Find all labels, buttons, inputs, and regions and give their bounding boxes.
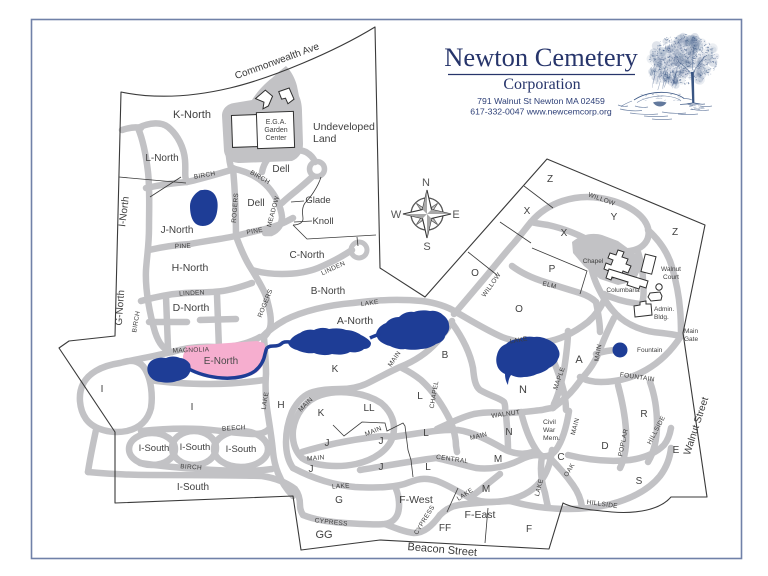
- svg-text:G: G: [335, 495, 343, 506]
- svg-text:I-South: I-South: [226, 444, 257, 455]
- svg-text:J-North: J-North: [161, 225, 194, 236]
- svg-text:D: D: [601, 441, 608, 452]
- svg-text:Garden: Garden: [264, 127, 287, 134]
- svg-text:M: M: [482, 484, 490, 495]
- svg-text:Z: Z: [672, 227, 678, 238]
- svg-text:MAIN: MAIN: [594, 344, 604, 362]
- svg-text:FF: FF: [439, 523, 451, 534]
- svg-text:Civil: Civil: [543, 419, 556, 426]
- svg-text:Bldg.: Bldg.: [654, 314, 669, 321]
- svg-text:LAKE: LAKE: [332, 482, 351, 490]
- svg-text:S: S: [423, 241, 430, 253]
- svg-text:Corporation: Corporation: [503, 76, 580, 93]
- svg-text:D-North: D-North: [173, 302, 210, 314]
- svg-text:Main: Main: [684, 328, 698, 335]
- svg-text:G-North: G-North: [114, 290, 127, 326]
- svg-text:R: R: [640, 409, 647, 420]
- svg-text:617-332-0047 www.newcemcorp.or: 617-332-0047 www.newcemcorp.org: [470, 107, 612, 117]
- svg-text:N: N: [505, 427, 512, 438]
- svg-text:I-South: I-South: [180, 442, 211, 453]
- svg-text:K-North: K-North: [173, 109, 211, 121]
- svg-text:791 Walnut St Newton MA 02459: 791 Walnut St Newton MA 02459: [477, 96, 605, 106]
- svg-text:Chapel: Chapel: [583, 258, 604, 265]
- svg-text:LAKE: LAKE: [360, 299, 379, 308]
- svg-text:Knoll: Knoll: [312, 216, 333, 227]
- svg-text:MAIN: MAIN: [570, 417, 581, 436]
- svg-text:F-East: F-East: [465, 509, 496, 521]
- svg-text:C-North: C-North: [289, 250, 324, 261]
- svg-text:E: E: [452, 209, 459, 221]
- svg-text:Land: Land: [313, 133, 337, 145]
- svg-text:K: K: [332, 364, 339, 375]
- svg-text:L: L: [425, 462, 431, 473]
- svg-text:L: L: [423, 428, 429, 439]
- svg-text:Court: Court: [663, 274, 679, 281]
- svg-text:P: P: [549, 264, 556, 275]
- svg-text:Z: Z: [547, 174, 553, 185]
- svg-text:Y: Y: [611, 212, 618, 223]
- svg-text:H-North: H-North: [172, 262, 209, 274]
- svg-text:CYPRESS: CYPRESS: [314, 517, 348, 527]
- svg-text:Walnut: Walnut: [661, 266, 681, 273]
- svg-text:MAIN: MAIN: [307, 454, 325, 462]
- svg-text:Undeveloped: Undeveloped: [313, 121, 375, 133]
- svg-text:J: J: [325, 438, 330, 449]
- svg-text:N: N: [519, 384, 527, 396]
- svg-text:C: C: [557, 452, 564, 463]
- svg-text:I: I: [191, 402, 194, 413]
- svg-text:E: E: [673, 445, 680, 456]
- svg-text:Walnut Street: Walnut Street: [682, 396, 711, 457]
- svg-text:Dell: Dell: [272, 164, 289, 175]
- svg-text:Glade: Glade: [305, 195, 330, 206]
- svg-text:O: O: [471, 268, 479, 279]
- svg-text:M: M: [494, 454, 502, 465]
- svg-text:BIRCH: BIRCH: [131, 310, 142, 333]
- svg-text:X: X: [524, 206, 531, 217]
- svg-text:H: H: [277, 400, 284, 411]
- svg-text:S: S: [636, 476, 643, 487]
- svg-text:F: F: [526, 524, 532, 535]
- svg-text:Columbaria: Columbaria: [606, 287, 640, 294]
- svg-text:O: O: [515, 304, 523, 315]
- svg-text:Mem.: Mem.: [543, 435, 560, 442]
- svg-text:Center: Center: [265, 135, 287, 142]
- svg-text:War: War: [543, 427, 556, 434]
- svg-text:Admin.: Admin.: [654, 306, 674, 313]
- svg-text:L: L: [417, 391, 423, 402]
- svg-text:LL: LL: [363, 403, 375, 414]
- svg-text:F-West: F-West: [399, 494, 433, 506]
- svg-text:GG: GG: [315, 529, 332, 541]
- svg-text:LINDEN: LINDEN: [179, 289, 205, 297]
- svg-text:Beacon Street: Beacon Street: [407, 541, 477, 559]
- svg-text:L-North: L-North: [145, 153, 178, 164]
- svg-text:A: A: [575, 354, 583, 366]
- svg-text:K: K: [318, 408, 325, 419]
- svg-text:PINE: PINE: [175, 243, 192, 251]
- svg-text:I: I: [101, 384, 104, 395]
- svg-text:N: N: [422, 177, 430, 189]
- svg-text:Newton Cemetery: Newton Cemetery: [444, 42, 638, 72]
- svg-text:J: J: [309, 464, 314, 475]
- svg-text:I-South: I-South: [139, 443, 170, 454]
- svg-text:B: B: [442, 350, 449, 361]
- svg-text:I-South: I-South: [177, 482, 209, 493]
- svg-text:I-North: I-North: [117, 196, 132, 228]
- svg-text:MAGNOLIA: MAGNOLIA: [172, 346, 209, 354]
- svg-text:A-North: A-North: [337, 315, 373, 327]
- svg-text:PINE: PINE: [246, 227, 264, 237]
- svg-text:Gate: Gate: [684, 336, 698, 343]
- svg-text:E-North: E-North: [204, 356, 238, 367]
- svg-text:OAK: OAK: [563, 462, 577, 478]
- svg-text:Dell: Dell: [247, 198, 264, 209]
- svg-text:W: W: [391, 209, 402, 221]
- svg-text:Fountain: Fountain: [637, 347, 663, 354]
- svg-text:X: X: [561, 228, 568, 239]
- svg-text:J: J: [379, 436, 384, 447]
- svg-text:J: J: [379, 462, 384, 473]
- svg-text:B-North: B-North: [311, 286, 345, 297]
- svg-text:E.G.A.: E.G.A.: [266, 119, 287, 126]
